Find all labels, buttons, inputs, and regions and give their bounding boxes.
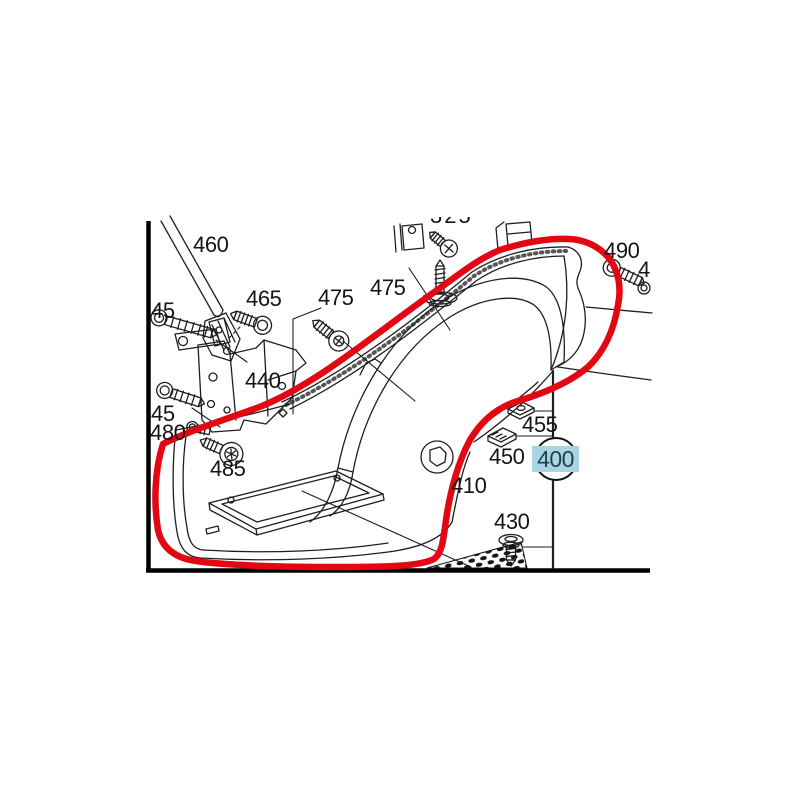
- torx-screw-475-icon: [307, 313, 353, 355]
- selected-part-callout-circle[interactable]: 400: [534, 437, 578, 481]
- part-label-490[interactable]: 490: [604, 240, 640, 262]
- part-label-475-left[interactable]: 475: [318, 287, 354, 309]
- part-label-4-clipped[interactable]: 4: [638, 259, 650, 281]
- part-label-430[interactable]: 430: [494, 511, 530, 533]
- diagram-artwork: [0, 0, 800, 800]
- fender-panel-outline: [173, 247, 652, 560]
- part-label-465[interactable]: 465: [246, 288, 282, 310]
- part-label-450[interactable]: 450: [489, 446, 525, 468]
- part-label-440[interactable]: 440: [245, 370, 281, 392]
- part-label-325-clipped[interactable]: 325: [430, 217, 473, 228]
- part-label-485[interactable]: 485: [210, 458, 246, 480]
- part-label-480[interactable]: 480: [150, 422, 186, 444]
- part-label-475-top[interactable]: 475: [370, 277, 406, 299]
- part-label-410[interactable]: 410: [451, 475, 487, 497]
- retainer-clip-icon: [394, 224, 424, 252]
- parts-diagram-canvas: 460 465 475 475 490 4 440 45 45 480 485 …: [0, 0, 800, 800]
- part-label-460[interactable]: 460: [193, 234, 229, 256]
- selected-part-number[interactable]: 400: [532, 446, 579, 472]
- cross-screw-icon: [424, 226, 461, 261]
- part-label-455[interactable]: 455: [522, 414, 558, 436]
- filler-hole: [421, 441, 453, 473]
- diagram-border: [146, 221, 650, 572]
- part-label-445-upper-clipped[interactable]: 45: [151, 300, 175, 322]
